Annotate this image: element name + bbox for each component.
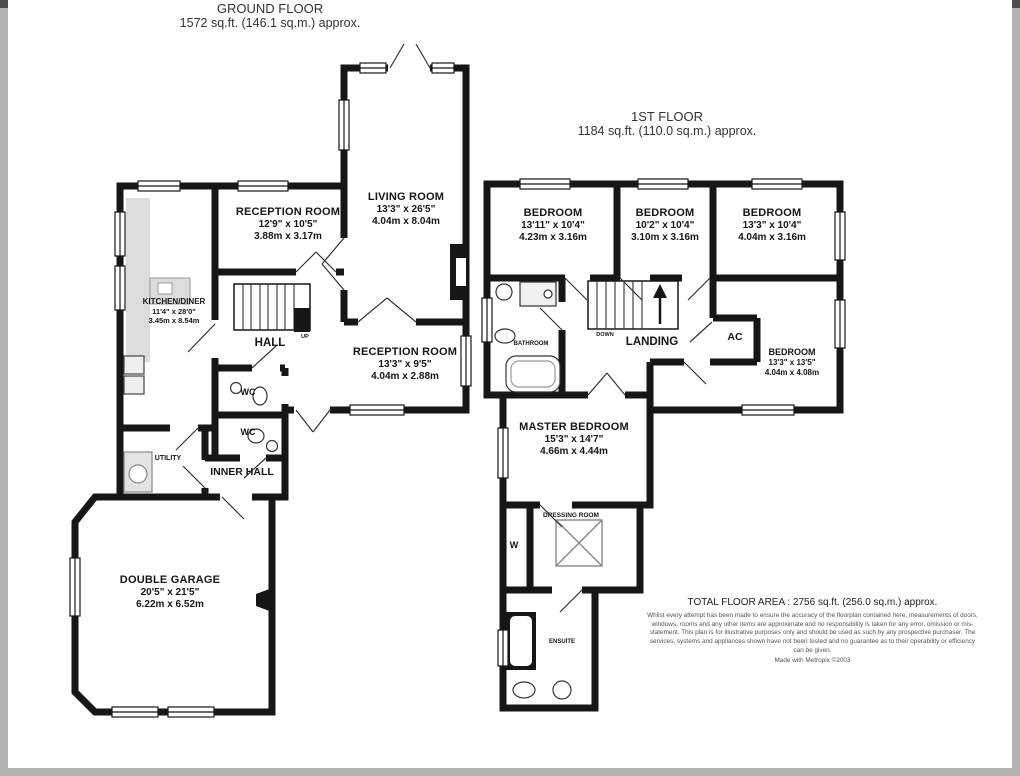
bedroom-3-label: BEDROOM 13'3" x 10'4" 4.04m x 3.16m — [716, 207, 828, 244]
dressing-room-label: DRESSING ROOM — [528, 512, 614, 519]
room-name: MASTER BEDROOM — [504, 421, 644, 434]
disclaimer-block: Whilst every attempt has been made to en… — [645, 612, 980, 666]
room-name: DOUBLE GARAGE — [95, 574, 245, 587]
master-bedroom-label: MASTER BEDROOM 15'3" x 14'7" 4.66m x 4.4… — [504, 421, 644, 458]
room-dims-metric: 4.04m x 3.16m — [716, 232, 828, 244]
room-dims-imperial: 13'3" x 26'5" — [348, 204, 464, 216]
room-dims-metric: 6.22m x 6.52m — [95, 599, 245, 611]
stairs-down-icon — [588, 281, 678, 329]
stairs-up-label: UP — [296, 334, 314, 340]
room-name: BEDROOM — [612, 207, 718, 220]
hall-label: HALL — [240, 337, 300, 349]
room-dims-metric: 4.04m x 8.04m — [348, 216, 464, 228]
ground-floor-title: GROUND FLOOR 1572 sq.ft. (146.1 sq.m.) a… — [120, 2, 420, 31]
room-dims-imperial: 10'2" x 10'4" — [612, 220, 718, 232]
utility-label: UTILITY — [138, 455, 198, 462]
reception-room-1-label: RECEPTION ROOM 12'9" x 10'5" 3.88m x 3.1… — [228, 206, 348, 243]
room-name: BEDROOM — [716, 207, 828, 220]
wardrobe-label: W — [505, 540, 523, 551]
room-name: RECEPTION ROOM — [348, 346, 462, 359]
room-dims-metric: 3.88m x 3.17m — [228, 231, 348, 243]
wc-2-label: WC — [234, 427, 262, 438]
ensuite-label: ENSUITE — [532, 639, 592, 645]
wc-1-label: WC — [234, 387, 262, 398]
stairs-up-icon — [234, 284, 310, 332]
bedroom-1-label: BEDROOM 13'11" x 10'4" 4.23m x 3.16m — [495, 207, 611, 244]
room-dims-imperial: 13'3" x 13'5" — [744, 358, 840, 368]
floorplan-page: GROUND FLOOR 1572 sq.ft. (146.1 sq.m.) a… — [0, 0, 1020, 776]
room-dims-imperial: 13'3" x 9'5" — [348, 359, 462, 371]
stairs-down-label: DOWN — [592, 332, 618, 338]
first-floor-title: 1ST FLOOR 1184 sq.ft. (110.0 sq.m.) appr… — [517, 110, 817, 139]
ground-floor-area: 1572 sq.ft. (146.1 sq.m.) approx. — [120, 16, 420, 30]
double-garage-label: DOUBLE GARAGE 20'5" x 21'5" 6.22m x 6.52… — [95, 574, 245, 611]
bathroom-label: BATHROOM — [500, 341, 562, 347]
room-dims-metric: 3.45m x 8.54m — [122, 316, 226, 325]
room-dims-metric: 4.04m x 2.88m — [348, 371, 462, 383]
ground-floor-name: GROUND FLOOR — [120, 2, 420, 16]
room-dims-imperial: 15'3" x 14'7" — [504, 434, 644, 446]
credit-text: Made with Metropix ©2003 — [645, 657, 980, 666]
room-dims-imperial: 20'5" x 21'5" — [95, 587, 245, 599]
room-name: LIVING ROOM — [348, 191, 464, 204]
landing-label: LANDING — [612, 336, 692, 348]
inner-hall-label: INNER HALL — [200, 466, 284, 478]
living-room-label: LIVING ROOM 13'3" x 26'5" 4.04m x 8.04m — [348, 191, 464, 228]
room-dims-imperial: 12'9" x 10'5" — [228, 219, 348, 231]
airing-cupboard-icon — [556, 520, 602, 566]
room-name: BEDROOM — [495, 207, 611, 220]
first-floor-area: 1184 sq.ft. (110.0 sq.m.) approx. — [517, 124, 817, 138]
fireplace-icon — [450, 244, 466, 300]
total-floor-area: TOTAL FLOOR AREA : 2756 sq.ft. (256.0 sq… — [640, 597, 985, 608]
ac-label: AC — [720, 331, 750, 343]
reception-room-2-label: RECEPTION ROOM 13'3" x 9'5" 4.04m x 2.88… — [348, 346, 462, 383]
bedroom-4-label: BEDROOM 13'3" x 13'5" 4.04m x 4.08m — [744, 347, 840, 378]
room-dims-metric: 4.04m x 4.08m — [744, 368, 840, 378]
bedroom-2-label: BEDROOM 10'2" x 10'4" 3.10m x 3.16m — [612, 207, 718, 244]
first-floor-name: 1ST FLOOR — [517, 110, 817, 124]
disclaimer-text: Whilst every attempt has been made to en… — [645, 612, 980, 655]
room-name: BEDROOM — [744, 347, 840, 358]
room-name: KITCHEN/DINER — [122, 297, 226, 307]
kitchen-diner-label: KITCHEN/DINER 11'4" x 28'0" 3.45m x 8.54… — [122, 297, 226, 325]
room-dims-imperial: 13'11" x 10'4" — [495, 220, 611, 232]
room-name: RECEPTION ROOM — [228, 206, 348, 219]
room-dims-imperial: 11'4" x 28'0" — [122, 307, 226, 316]
room-dims-metric: 4.66m x 4.44m — [504, 446, 644, 458]
room-dims-metric: 4.23m x 3.16m — [495, 232, 611, 244]
room-dims-metric: 3.10m x 3.16m — [612, 232, 718, 244]
room-dims-imperial: 13'3" x 10'4" — [716, 220, 828, 232]
